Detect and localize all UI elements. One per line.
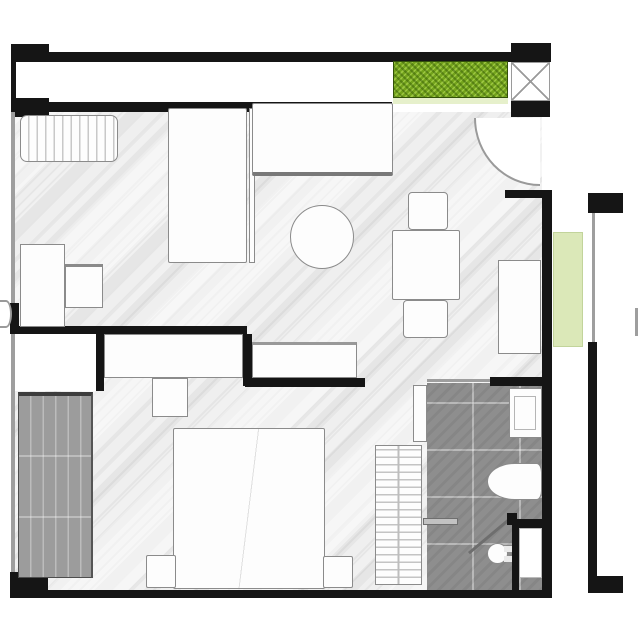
- side-table: [65, 264, 103, 308]
- built-in-closet: [104, 334, 243, 378]
- wall-bench: [252, 342, 357, 378]
- floor-plan: [0, 0, 640, 631]
- terrace-railing-line: [592, 213, 595, 342]
- partition-wall-bottom: [245, 378, 365, 387]
- dining-chair-top: [408, 192, 448, 230]
- bedroom-niche: [15, 334, 96, 391]
- toilet-flush-marks: [504, 546, 512, 552]
- console: [498, 260, 541, 354]
- double-bed: [173, 428, 325, 589]
- duct-niche-wall-left: [512, 519, 519, 593]
- wardrobe: [18, 392, 93, 578]
- planter-sill: [393, 98, 508, 104]
- service-shaft: [511, 62, 550, 101]
- duct-niche: [519, 528, 542, 578]
- nightstand-left: [146, 555, 176, 588]
- dining-table: [392, 230, 460, 300]
- railing-end-block-right: [511, 43, 551, 62]
- right-wall-cap: [505, 190, 552, 198]
- wall-cabinet: [252, 103, 393, 176]
- dining-chair-bottom: [403, 300, 448, 338]
- railing-end-block-left: [11, 44, 49, 62]
- washbasin-bowl: [514, 396, 536, 430]
- terrace-wall-right: [588, 342, 597, 576]
- nightstand-right: [323, 556, 353, 588]
- bathroom-top-edge: [427, 379, 490, 382]
- window-radiator: [20, 115, 118, 162]
- towel-radiator: [375, 445, 422, 585]
- bathtub: [487, 463, 542, 500]
- bathroom-shelf-bar: [423, 518, 458, 525]
- terrace-wall-top-L: [588, 193, 623, 213]
- right-edge-mark: [635, 308, 638, 336]
- bottom-wall: [10, 590, 552, 598]
- partition-wall-top: [13, 326, 247, 334]
- left-window-upper: [11, 112, 15, 303]
- desk: [20, 244, 65, 327]
- left-edge-section-mark: [0, 300, 12, 328]
- partition-wall-left-vert: [96, 334, 104, 391]
- shower-screen: [413, 385, 427, 442]
- toilet-flush-marks2: [504, 556, 512, 562]
- sofa: [168, 108, 247, 263]
- coffee-table: [290, 205, 354, 269]
- terrace-wall-foot: [588, 576, 623, 593]
- terrace-planter-box: [553, 232, 583, 347]
- top-wall-right-block: [511, 101, 550, 117]
- bathroom-top-wall: [490, 377, 552, 386]
- balcony-planter-box: [393, 61, 508, 98]
- tv-unit: [152, 378, 188, 417]
- right-wall: [542, 198, 552, 590]
